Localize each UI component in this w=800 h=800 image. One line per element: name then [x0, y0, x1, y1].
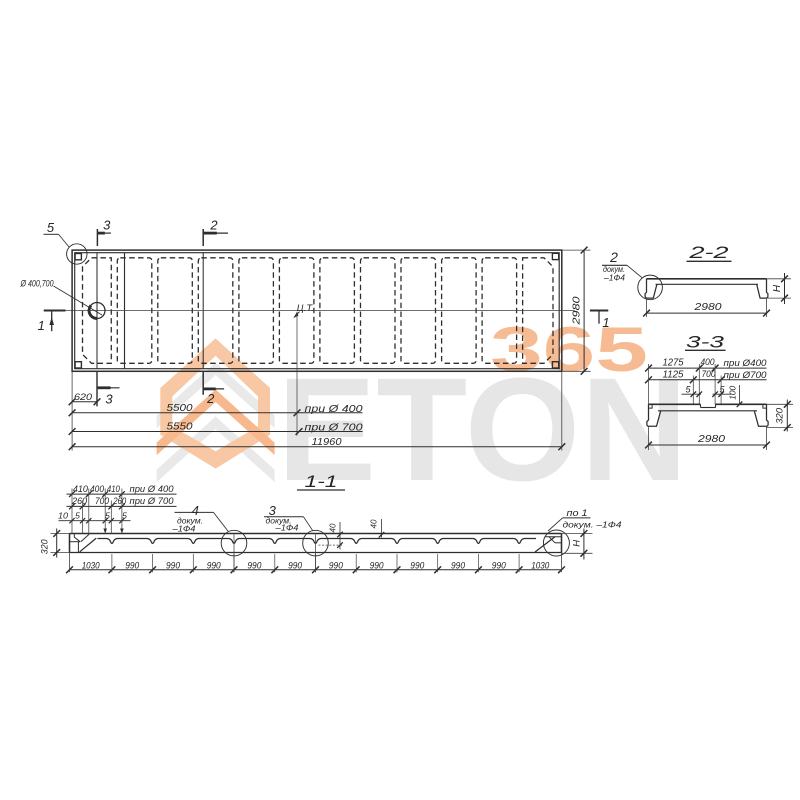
svg-text:990: 990	[329, 561, 343, 571]
svg-text:–1Ф4: –1Ф4	[171, 523, 195, 533]
svg-text:990: 990	[207, 561, 221, 571]
svg-text:5550: 5550	[167, 421, 193, 433]
svg-text:5: 5	[105, 511, 110, 521]
svg-text:260: 260	[112, 496, 126, 506]
svg-text:990: 990	[410, 561, 424, 571]
svg-text:3: 3	[103, 217, 111, 232]
svg-text:40: 40	[369, 519, 378, 528]
svg-text:400: 400	[701, 357, 716, 368]
svg-text:–1Ф4: –1Ф4	[603, 272, 625, 282]
svg-text:40: 40	[328, 523, 337, 532]
svg-text:2980: 2980	[697, 433, 725, 445]
svg-text:100: 100	[727, 386, 737, 400]
svg-text:10: 10	[58, 511, 68, 521]
svg-text:990: 990	[247, 561, 261, 571]
svg-text:докум. –1Ф4: докум. –1Ф4	[563, 519, 622, 529]
svg-text:410: 410	[107, 484, 120, 494]
svg-text:260: 260	[71, 496, 87, 506]
svg-text:5: 5	[47, 220, 55, 235]
svg-text:5500: 5500	[167, 402, 193, 414]
svg-text:700: 700	[702, 369, 717, 380]
svg-text:320: 320	[775, 408, 785, 424]
svg-text:990: 990	[451, 561, 465, 571]
svg-text:5: 5	[75, 511, 80, 521]
svg-text:при Ø400: при Ø400	[724, 358, 768, 369]
svg-text:1275: 1275	[663, 358, 684, 369]
svg-text:–1Ф4: –1Ф4	[274, 523, 298, 533]
svg-text:990: 990	[288, 561, 302, 571]
svg-text:700: 700	[95, 496, 109, 506]
svg-text:990: 990	[370, 561, 384, 571]
svg-text:2: 2	[609, 249, 618, 265]
svg-text:3-3: 3-3	[686, 332, 725, 351]
svg-text:при Ø 400: при Ø 400	[130, 484, 174, 494]
svg-text:5: 5	[122, 511, 127, 521]
svg-text:Ø 400,700: Ø 400,700	[20, 279, 54, 290]
svg-text:2980: 2980	[693, 301, 721, 313]
svg-text:365: 365	[490, 315, 648, 385]
svg-text:410: 410	[73, 484, 88, 494]
svg-text:1030: 1030	[82, 561, 100, 571]
svg-text:при Ø700: при Ø700	[724, 370, 768, 381]
svg-text:990: 990	[492, 561, 506, 571]
svg-text:400: 400	[90, 484, 104, 494]
svg-text:990: 990	[125, 561, 139, 571]
svg-text:2980: 2980	[570, 296, 582, 325]
svg-text:при Ø 400: при Ø 400	[305, 403, 363, 415]
svg-text:1125: 1125	[663, 369, 684, 380]
svg-text:3: 3	[105, 392, 113, 407]
svg-text:по 1: по 1	[567, 508, 588, 519]
svg-text:11960: 11960	[312, 436, 342, 448]
svg-text:1030: 1030	[531, 561, 549, 571]
svg-text:2-2: 2-2	[688, 243, 729, 262]
svg-text:1: 1	[38, 318, 45, 333]
svg-text:620: 620	[74, 392, 93, 403]
svg-text:H: H	[772, 284, 783, 292]
svg-text:1: 1	[602, 315, 609, 330]
svg-text:при Ø 700: при Ø 700	[305, 422, 363, 434]
svg-text:990: 990	[166, 561, 180, 571]
svg-text:H: H	[571, 540, 582, 547]
svg-text:320: 320	[39, 539, 49, 554]
svg-text:1-1: 1-1	[305, 472, 338, 491]
svg-text:2: 2	[209, 217, 218, 232]
svg-text:2: 2	[206, 391, 215, 406]
svg-text:при Ø 700: при Ø 700	[130, 496, 174, 506]
